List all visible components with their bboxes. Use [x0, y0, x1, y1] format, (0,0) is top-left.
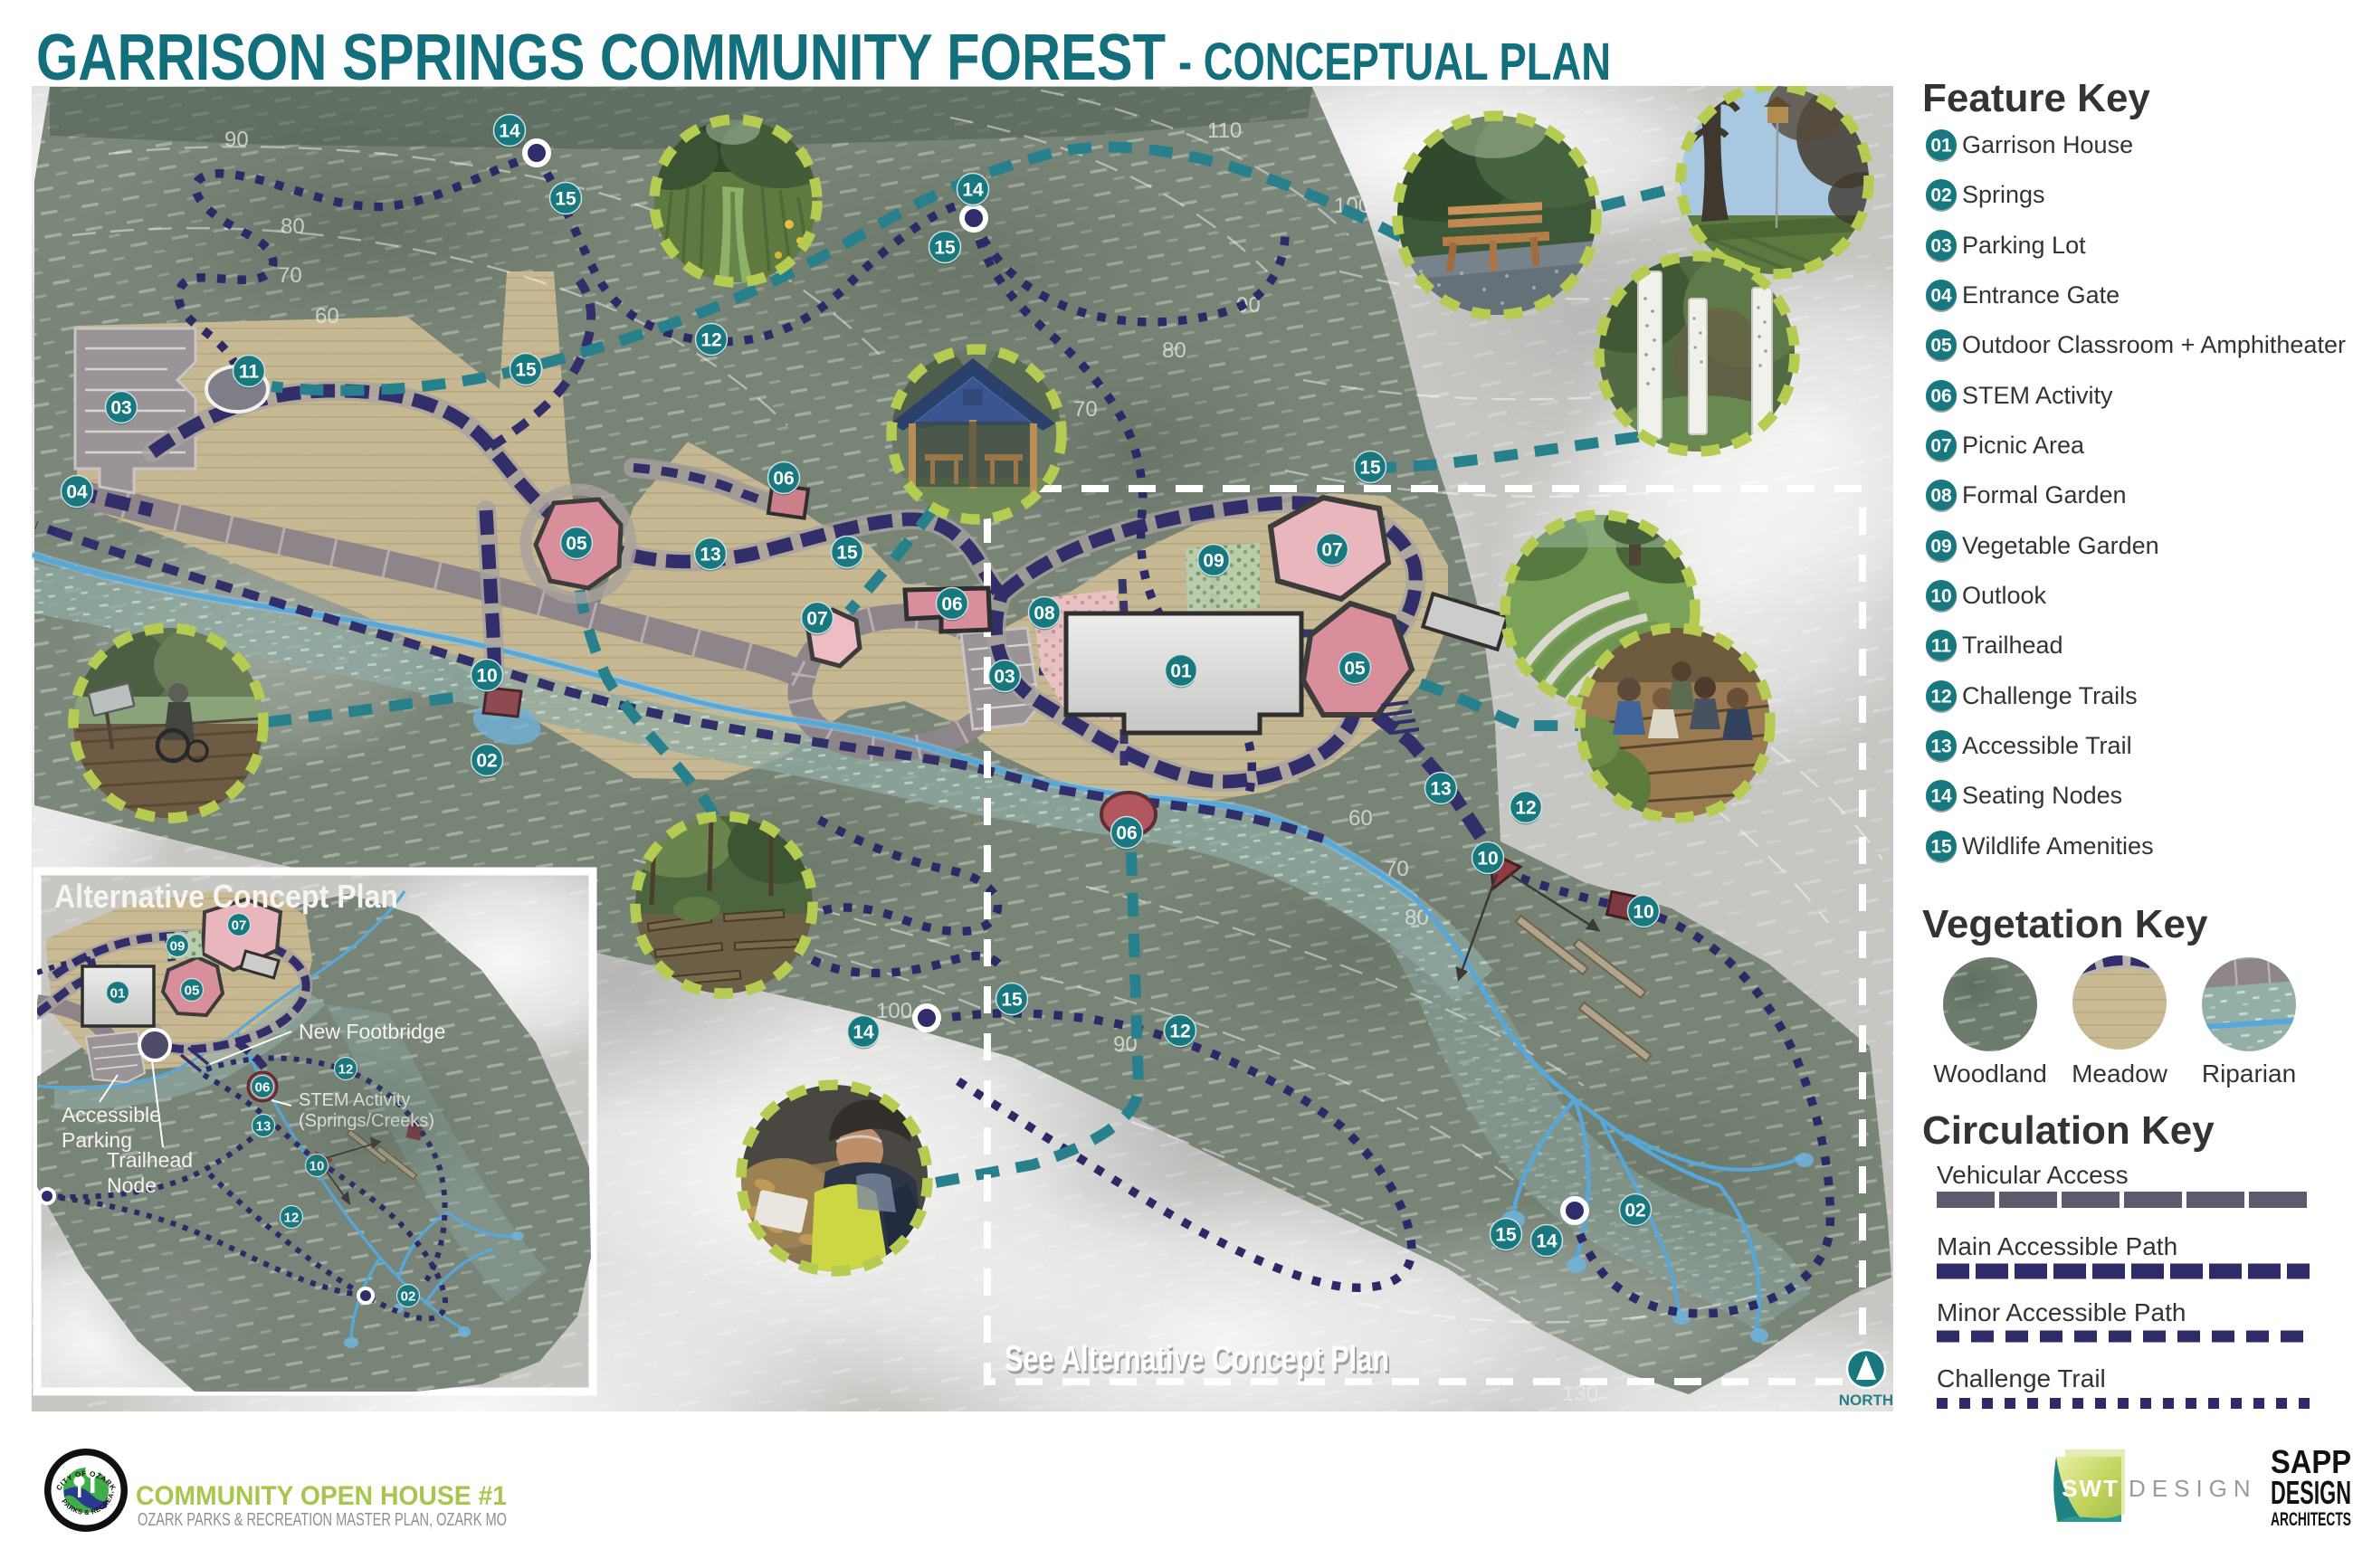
- svg-text:12: 12: [700, 330, 721, 351]
- svg-text:Entrance Gate: Entrance Gate: [1962, 281, 2120, 309]
- svg-text:Vegetation Key: Vegetation Key: [1922, 902, 2208, 946]
- svg-text:03: 03: [994, 667, 1015, 688]
- svg-text:STEM Activity: STEM Activity: [1962, 382, 2113, 409]
- svg-text:04: 04: [66, 482, 88, 503]
- svg-text:15: 15: [1001, 990, 1023, 1011]
- svg-text:15: 15: [515, 360, 537, 381]
- svg-text:13: 13: [1430, 779, 1451, 800]
- svg-text:60: 60: [1348, 806, 1373, 831]
- svg-text:Springs: Springs: [1962, 181, 2045, 208]
- svg-text:Vegetable Garden: Vegetable Garden: [1962, 532, 2159, 559]
- svg-text:Accessible Trail: Accessible Trail: [1962, 732, 2132, 759]
- svg-text:05: 05: [185, 984, 200, 999]
- svg-text:DESIGN: DESIGN: [2129, 1475, 2257, 1502]
- svg-text:08: 08: [1930, 486, 1952, 507]
- svg-text:09: 09: [1930, 537, 1951, 557]
- svg-text:Accessible: Accessible: [62, 1103, 161, 1126]
- svg-text:06: 06: [773, 469, 794, 489]
- svg-text:11: 11: [1931, 636, 1952, 657]
- svg-text:02: 02: [476, 751, 497, 772]
- svg-text:14: 14: [1536, 1231, 1558, 1252]
- svg-text:10: 10: [1633, 902, 1653, 923]
- svg-text:Main Accessible Path: Main Accessible Path: [1937, 1232, 2177, 1260]
- svg-text:10: 10: [1477, 849, 1498, 870]
- svg-text:Woodland: Woodland: [1933, 1060, 2047, 1088]
- svg-text:12: 12: [1930, 687, 1951, 708]
- svg-text:07: 07: [1321, 540, 1342, 561]
- svg-text:130: 130: [1562, 1382, 1598, 1406]
- svg-text:OZARK PARKS & RECREATION MASTE: OZARK PARKS & RECREATION MASTER PLAN, OZ…: [138, 1509, 507, 1530]
- svg-text:12: 12: [284, 1211, 300, 1226]
- svg-text:Picnic Area: Picnic Area: [1962, 432, 2085, 459]
- svg-text:Outlook: Outlook: [1962, 582, 2047, 609]
- svg-text:01: 01: [1930, 136, 1952, 157]
- svg-text:07: 07: [806, 609, 827, 630]
- svg-text:15: 15: [934, 238, 956, 259]
- svg-text:Challenge Trail: Challenge Trail: [1937, 1364, 2106, 1392]
- svg-text:13: 13: [700, 545, 720, 565]
- svg-text:80: 80: [281, 214, 305, 239]
- svg-text:70: 70: [278, 263, 302, 288]
- svg-text:07: 07: [1930, 436, 1951, 457]
- svg-text:02: 02: [1930, 185, 1951, 206]
- svg-text:Parking Lot: Parking Lot: [1962, 232, 2086, 259]
- svg-text:Node: Node: [107, 1174, 157, 1197]
- svg-text:60: 60: [315, 304, 339, 328]
- svg-text:70: 70: [1073, 397, 1098, 422]
- svg-text:100: 100: [876, 999, 912, 1023]
- svg-text:07: 07: [232, 918, 247, 934]
- svg-text:04: 04: [1930, 286, 1952, 307]
- svg-text:15: 15: [1495, 1225, 1517, 1246]
- svg-text:14: 14: [499, 121, 520, 142]
- svg-text:05: 05: [1344, 659, 1366, 679]
- svg-text:Formal Garden: Formal Garden: [1962, 481, 2127, 508]
- svg-text:Garrison House: Garrison House: [1962, 131, 2133, 158]
- svg-text:10: 10: [476, 666, 497, 687]
- svg-text:GARRISON SPRINGS COMMUNITY FOR: GARRISON SPRINGS COMMUNITY FOREST: [36, 22, 1166, 94]
- svg-text:14: 14: [962, 180, 984, 201]
- svg-text:15: 15: [836, 543, 858, 564]
- svg-text:Trailhead: Trailhead: [1962, 632, 2063, 659]
- svg-text:NORTH: NORTH: [1839, 1392, 1893, 1409]
- svg-text:Outdoor Classroom + Amphitheat: Outdoor Classroom + Amphitheater: [1962, 331, 2346, 358]
- svg-text:03: 03: [1930, 236, 1951, 257]
- svg-text:Circulation Key: Circulation Key: [1922, 1108, 2215, 1153]
- svg-text:10: 10: [1930, 586, 1951, 607]
- svg-text:Challenge Trails: Challenge Trails: [1962, 682, 2138, 709]
- svg-text:02: 02: [1624, 1201, 1645, 1221]
- svg-text:110: 110: [1207, 119, 1242, 143]
- svg-text:14: 14: [1930, 786, 1952, 807]
- svg-text:02: 02: [401, 1289, 416, 1305]
- svg-text:06: 06: [941, 594, 962, 615]
- svg-text:New Footbridge: New Footbridge: [299, 1020, 445, 1043]
- svg-text:See Alternative Concept Plan: See Alternative Concept Plan: [1005, 1339, 1389, 1379]
- svg-text:09: 09: [170, 939, 186, 955]
- svg-text:- CONCEPTUAL PLAN: - CONCEPTUAL PLAN: [1178, 33, 1611, 91]
- svg-text:Seating Nodes: Seating Nodes: [1962, 782, 2122, 809]
- svg-text:11: 11: [239, 362, 260, 383]
- svg-text:Trailhead: Trailhead: [107, 1148, 193, 1172]
- svg-text:06: 06: [1930, 386, 1951, 407]
- svg-text:08: 08: [1034, 603, 1055, 624]
- svg-text:SWT: SWT: [2062, 1475, 2120, 1502]
- svg-text:Minor Accessible Path: Minor Accessible Path: [1937, 1298, 2186, 1326]
- svg-text:06: 06: [255, 1080, 271, 1096]
- svg-text:15: 15: [1930, 837, 1952, 858]
- svg-text:80: 80: [1162, 338, 1186, 363]
- svg-text:03: 03: [110, 398, 131, 419]
- svg-text:13: 13: [1930, 736, 1951, 757]
- svg-text:Feature Key: Feature Key: [1922, 76, 2150, 120]
- svg-text:05: 05: [1930, 336, 1952, 356]
- svg-text:ARCHITECTS: ARCHITECTS: [2271, 1509, 2351, 1530]
- svg-text:12: 12: [1515, 798, 1536, 819]
- svg-text:05: 05: [566, 534, 587, 555]
- svg-text:Vehicular Access: Vehicular Access: [1937, 1161, 2129, 1189]
- svg-text:DESIGN: DESIGN: [2271, 1474, 2351, 1511]
- svg-text:01: 01: [110, 986, 126, 1002]
- svg-text:Alternative Concept Plan: Alternative Concept Plan: [54, 878, 398, 915]
- svg-text:01: 01: [1170, 661, 1192, 682]
- svg-text:06: 06: [1116, 823, 1137, 844]
- svg-text:COMMUNITY OPEN HOUSE #1: COMMUNITY OPEN HOUSE #1: [136, 1481, 507, 1511]
- svg-text:15: 15: [555, 189, 576, 210]
- svg-text:Riparian: Riparian: [2202, 1060, 2296, 1088]
- svg-text:Meadow: Meadow: [2072, 1060, 2168, 1088]
- svg-text:14: 14: [853, 1022, 874, 1043]
- svg-text:Wildlife Amenities: Wildlife Amenities: [1962, 832, 2154, 860]
- svg-text:09: 09: [1203, 551, 1224, 572]
- svg-text:90: 90: [224, 128, 249, 152]
- svg-text:12: 12: [1169, 1022, 1190, 1042]
- svg-text:15: 15: [1359, 458, 1381, 479]
